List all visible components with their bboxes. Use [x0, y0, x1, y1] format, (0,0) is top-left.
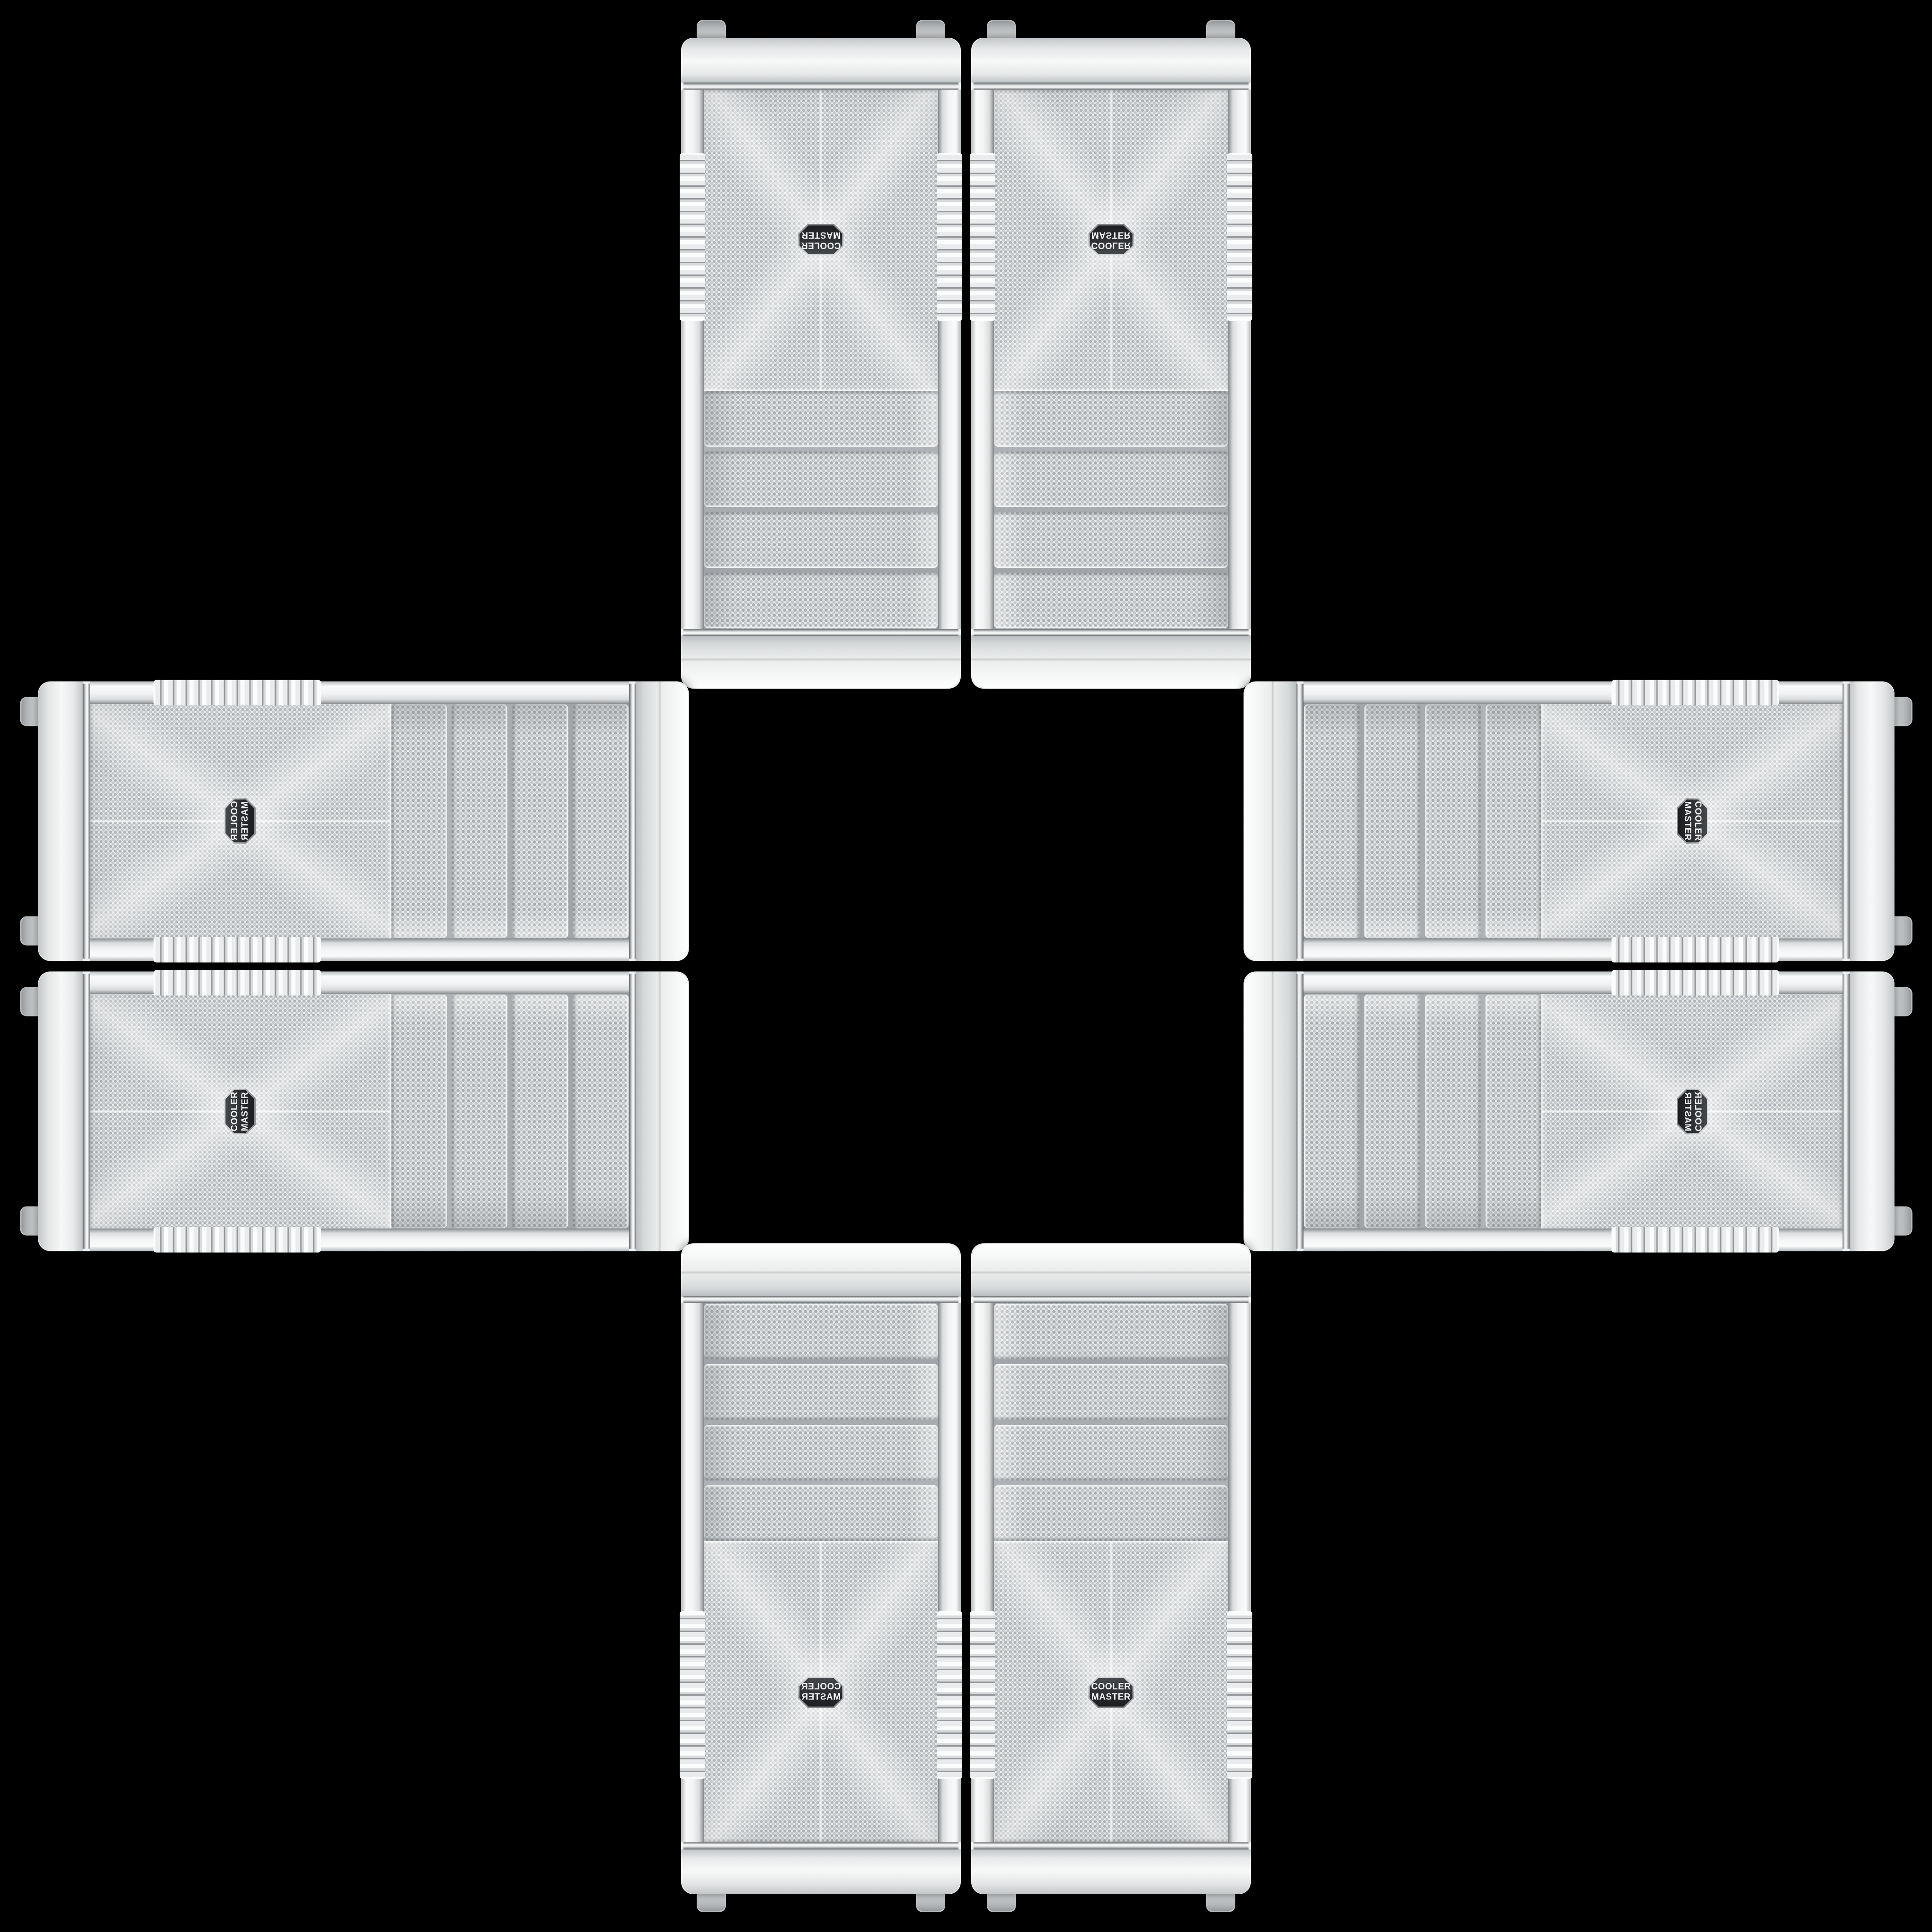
side-grip-ribs [680, 153, 705, 321]
logo-line-master: MASTER [1682, 801, 1692, 841]
bezel-side-column-left [971, 90, 994, 629]
logo-line-cooler: COOLER [801, 240, 841, 250]
drive-bay-cover [704, 451, 938, 508]
side-grip-ribs [1227, 153, 1252, 321]
drive-bay-cover [1485, 704, 1541, 938]
case-top-cap [971, 1243, 1251, 1297]
drive-bay-cover [994, 573, 1228, 629]
logo-line-cooler: COOLER [1091, 240, 1131, 250]
bezel-side-column-left [938, 1303, 961, 1842]
logo-text: COOLER MASTER [1682, 801, 1703, 841]
drive-bay-cover [994, 1485, 1228, 1541]
logo-badge-mount: COOLER MASTER [1676, 1088, 1708, 1134]
logo-line-cooler: COOLER [230, 801, 240, 841]
logo-text: COOLER MASTER [230, 801, 250, 841]
drive-bay-cover [1424, 704, 1481, 938]
product-photo-canvas: COOLER MASTER [0, 0, 1932, 1932]
side-grip-ribs [970, 1611, 995, 1779]
logo-line-master: MASTER [240, 1091, 250, 1131]
drive-bay-cover [512, 704, 568, 938]
cooler-master-logo-badge: COOLER MASTER [1676, 1088, 1708, 1134]
chrome-trim-top [1296, 683, 1303, 958]
side-grip-ribs [153, 1227, 321, 1252]
pc-case-right-upper: COOLER MASTER [1243, 681, 1894, 961]
front-mesh-panel: COOLER MASTER [1541, 994, 1843, 1228]
cooler-master-logo-badge: COOLER MASTER [224, 798, 256, 844]
pc-case-right-lower: COOLER MASTER [1243, 971, 1894, 1251]
bezel-side-column-left [938, 90, 961, 629]
side-grip-ribs [680, 1611, 705, 1779]
front-mesh-panel: COOLER MASTER [89, 704, 391, 938]
pc-case-top-right: COOLER MASTER [971, 38, 1251, 689]
logo-line-cooler: COOLER [801, 1682, 841, 1692]
drive-bay-cover [994, 391, 1228, 447]
bezel-side-column-left [1303, 938, 1842, 961]
bezel-side-column-right [90, 1228, 629, 1251]
drive-bay-cover [704, 1424, 938, 1481]
drive-bay-area [704, 391, 938, 629]
drive-bay-cover [704, 1364, 938, 1420]
logo-line-master: MASTER [801, 1692, 841, 1703]
bezel-side-column-right [1303, 1228, 1842, 1251]
logo-line-cooler: COOLER [1692, 801, 1703, 841]
drive-bay-cover [704, 512, 938, 568]
drive-bay-cover [451, 704, 508, 938]
case-top-cap [1243, 681, 1297, 961]
cooler-master-logo-badge: COOLER MASTER [224, 1088, 256, 1134]
drive-bay-area [994, 391, 1228, 629]
side-grip-ribs [1611, 1227, 1779, 1252]
drive-bay-cover [1364, 994, 1420, 1228]
logo-line-master: MASTER [1091, 1692, 1131, 1703]
drive-bay-area [704, 1303, 938, 1541]
drive-bay-cover [994, 1364, 1228, 1420]
drive-bay-cover [704, 1303, 938, 1359]
front-mesh-panel: COOLER MASTER [89, 994, 391, 1228]
drive-bay-cover [391, 704, 447, 938]
logo-text: COOLER MASTER [1091, 1682, 1131, 1703]
chrome-trim-bottom [683, 83, 958, 90]
drive-bay-cover [704, 573, 938, 629]
logo-badge-mount: COOLER MASTER [224, 1088, 256, 1134]
logo-text: COOLER MASTER [230, 1091, 250, 1131]
pc-case-left-upper: COOLER MASTER [38, 681, 689, 961]
logo-text: COOLER MASTER [801, 230, 841, 250]
logo-line-master: MASTER [801, 230, 841, 240]
front-mesh-panel: COOLER MASTER [1541, 704, 1843, 938]
chrome-trim-top [629, 974, 636, 1249]
logo-line-cooler: COOLER [230, 1091, 240, 1131]
drive-bay-cover [994, 1424, 1228, 1481]
logo-line-master: MASTER [1091, 230, 1131, 240]
chrome-trim-top [629, 683, 636, 958]
drive-bay-area [994, 1303, 1228, 1541]
drive-bay-cover [512, 994, 568, 1228]
cooler-master-logo-badge: COOLER MASTER [798, 224, 844, 256]
front-mesh-panel: COOLER MASTER [994, 1541, 1228, 1843]
logo-line-master: MASTER [1682, 1091, 1692, 1131]
front-mesh-panel: COOLER MASTER [704, 89, 938, 391]
logo-badge-mount: COOLER MASTER [1676, 798, 1708, 844]
drive-bay-cover [1364, 704, 1420, 938]
side-grip-ribs [1227, 1611, 1252, 1779]
chrome-trim-top [974, 1296, 1249, 1303]
bezel-side-column-left [1303, 971, 1842, 994]
chrome-trim-top [974, 629, 1249, 636]
drive-bay-cover [1303, 994, 1359, 1228]
logo-line-cooler: COOLER [1091, 1682, 1131, 1692]
drive-bay-cover [994, 451, 1228, 508]
logo-text: COOLER MASTER [1091, 230, 1131, 250]
front-mesh-panel: COOLER MASTER [994, 89, 1228, 391]
case-top-cap [635, 681, 689, 961]
drive-bay-area [1303, 704, 1541, 938]
drive-bay-area [391, 704, 629, 938]
pc-case-left-lower: COOLER MASTER [38, 971, 689, 1251]
case-bottom-cap [681, 38, 961, 83]
logo-badge-mount: COOLER MASTER [798, 1676, 844, 1708]
case-bottom-cap [38, 971, 83, 1251]
chrome-trim-top [683, 1296, 958, 1303]
chrome-trim-bottom [1842, 683, 1849, 958]
chrome-trim-bottom [683, 1842, 958, 1849]
case-top-cap [1243, 971, 1297, 1251]
side-grip-ribs [1611, 970, 1779, 995]
pc-case-bottom-left: COOLER MASTER [681, 1243, 961, 1894]
cooler-master-logo-badge: COOLER MASTER [798, 1676, 844, 1708]
cooler-master-logo-badge: COOLER MASTER [1088, 1676, 1134, 1708]
bezel-side-column-right [681, 90, 704, 629]
bezel-side-column-right [90, 681, 629, 704]
bezel-side-column-right [1228, 90, 1251, 629]
bezel-side-column-right [1228, 1303, 1251, 1842]
drive-bay-cover [1303, 704, 1359, 938]
chrome-trim-bottom [1842, 974, 1849, 1249]
case-top-cap [681, 635, 961, 689]
drive-bay-cover [704, 391, 938, 447]
drive-bay-cover [1424, 994, 1481, 1228]
drive-bay-cover [994, 1303, 1228, 1359]
side-grip-ribs [153, 680, 321, 705]
bezel-side-column-left [971, 1303, 994, 1842]
logo-line-master: MASTER [240, 801, 250, 841]
side-grip-ribs [970, 153, 995, 321]
side-grip-ribs [153, 970, 321, 995]
logo-text: COOLER MASTER [1682, 1091, 1703, 1131]
logo-badge-mount: COOLER MASTER [1088, 224, 1134, 256]
chrome-trim-bottom [83, 683, 90, 958]
logo-badge-mount: COOLER MASTER [798, 224, 844, 256]
bezel-side-column-right [681, 1303, 704, 1842]
case-top-cap [635, 971, 689, 1251]
drive-bay-cover [704, 1485, 938, 1541]
drive-bay-cover [1485, 994, 1541, 1228]
drive-bay-cover [573, 994, 629, 1228]
drive-bay-cover [451, 994, 508, 1228]
case-bottom-cap [1849, 681, 1894, 961]
drive-bay-cover [391, 994, 447, 1228]
cooler-master-logo-badge: COOLER MASTER [1676, 798, 1708, 844]
cooler-master-logo-badge: COOLER MASTER [1088, 224, 1134, 256]
pc-case-bottom-right: COOLER MASTER [971, 1243, 1251, 1894]
chrome-trim-top [683, 629, 958, 636]
case-top-cap [681, 1243, 961, 1297]
chrome-trim-bottom [974, 1842, 1249, 1849]
case-bottom-cap [38, 681, 83, 961]
case-bottom-cap [971, 1849, 1251, 1894]
case-bottom-cap [971, 38, 1251, 83]
drive-bay-cover [573, 704, 629, 938]
side-grip-ribs [937, 1611, 962, 1779]
case-bottom-cap [681, 1849, 961, 1894]
logo-badge-mount: COOLER MASTER [224, 798, 256, 844]
side-grip-ribs [937, 153, 962, 321]
bezel-side-column-right [1303, 681, 1842, 704]
front-mesh-panel: COOLER MASTER [704, 1541, 938, 1843]
bezel-side-column-left [90, 971, 629, 994]
drive-bay-area [391, 994, 629, 1228]
pc-case-top-left: COOLER MASTER [681, 38, 961, 689]
logo-badge-mount: COOLER MASTER [1088, 1676, 1134, 1708]
drive-bay-cover [994, 512, 1228, 568]
drive-bay-area [1303, 994, 1541, 1228]
side-grip-ribs [1611, 937, 1779, 962]
side-grip-ribs [1611, 680, 1779, 705]
logo-text: COOLER MASTER [801, 1682, 841, 1703]
chrome-trim-bottom [83, 974, 90, 1249]
case-bottom-cap [1849, 971, 1894, 1251]
side-grip-ribs [153, 937, 321, 962]
chrome-trim-bottom [974, 83, 1249, 90]
bezel-side-column-left [90, 938, 629, 961]
case-top-cap [971, 635, 1251, 689]
chrome-trim-top [1296, 974, 1303, 1249]
logo-line-cooler: COOLER [1692, 1091, 1703, 1131]
